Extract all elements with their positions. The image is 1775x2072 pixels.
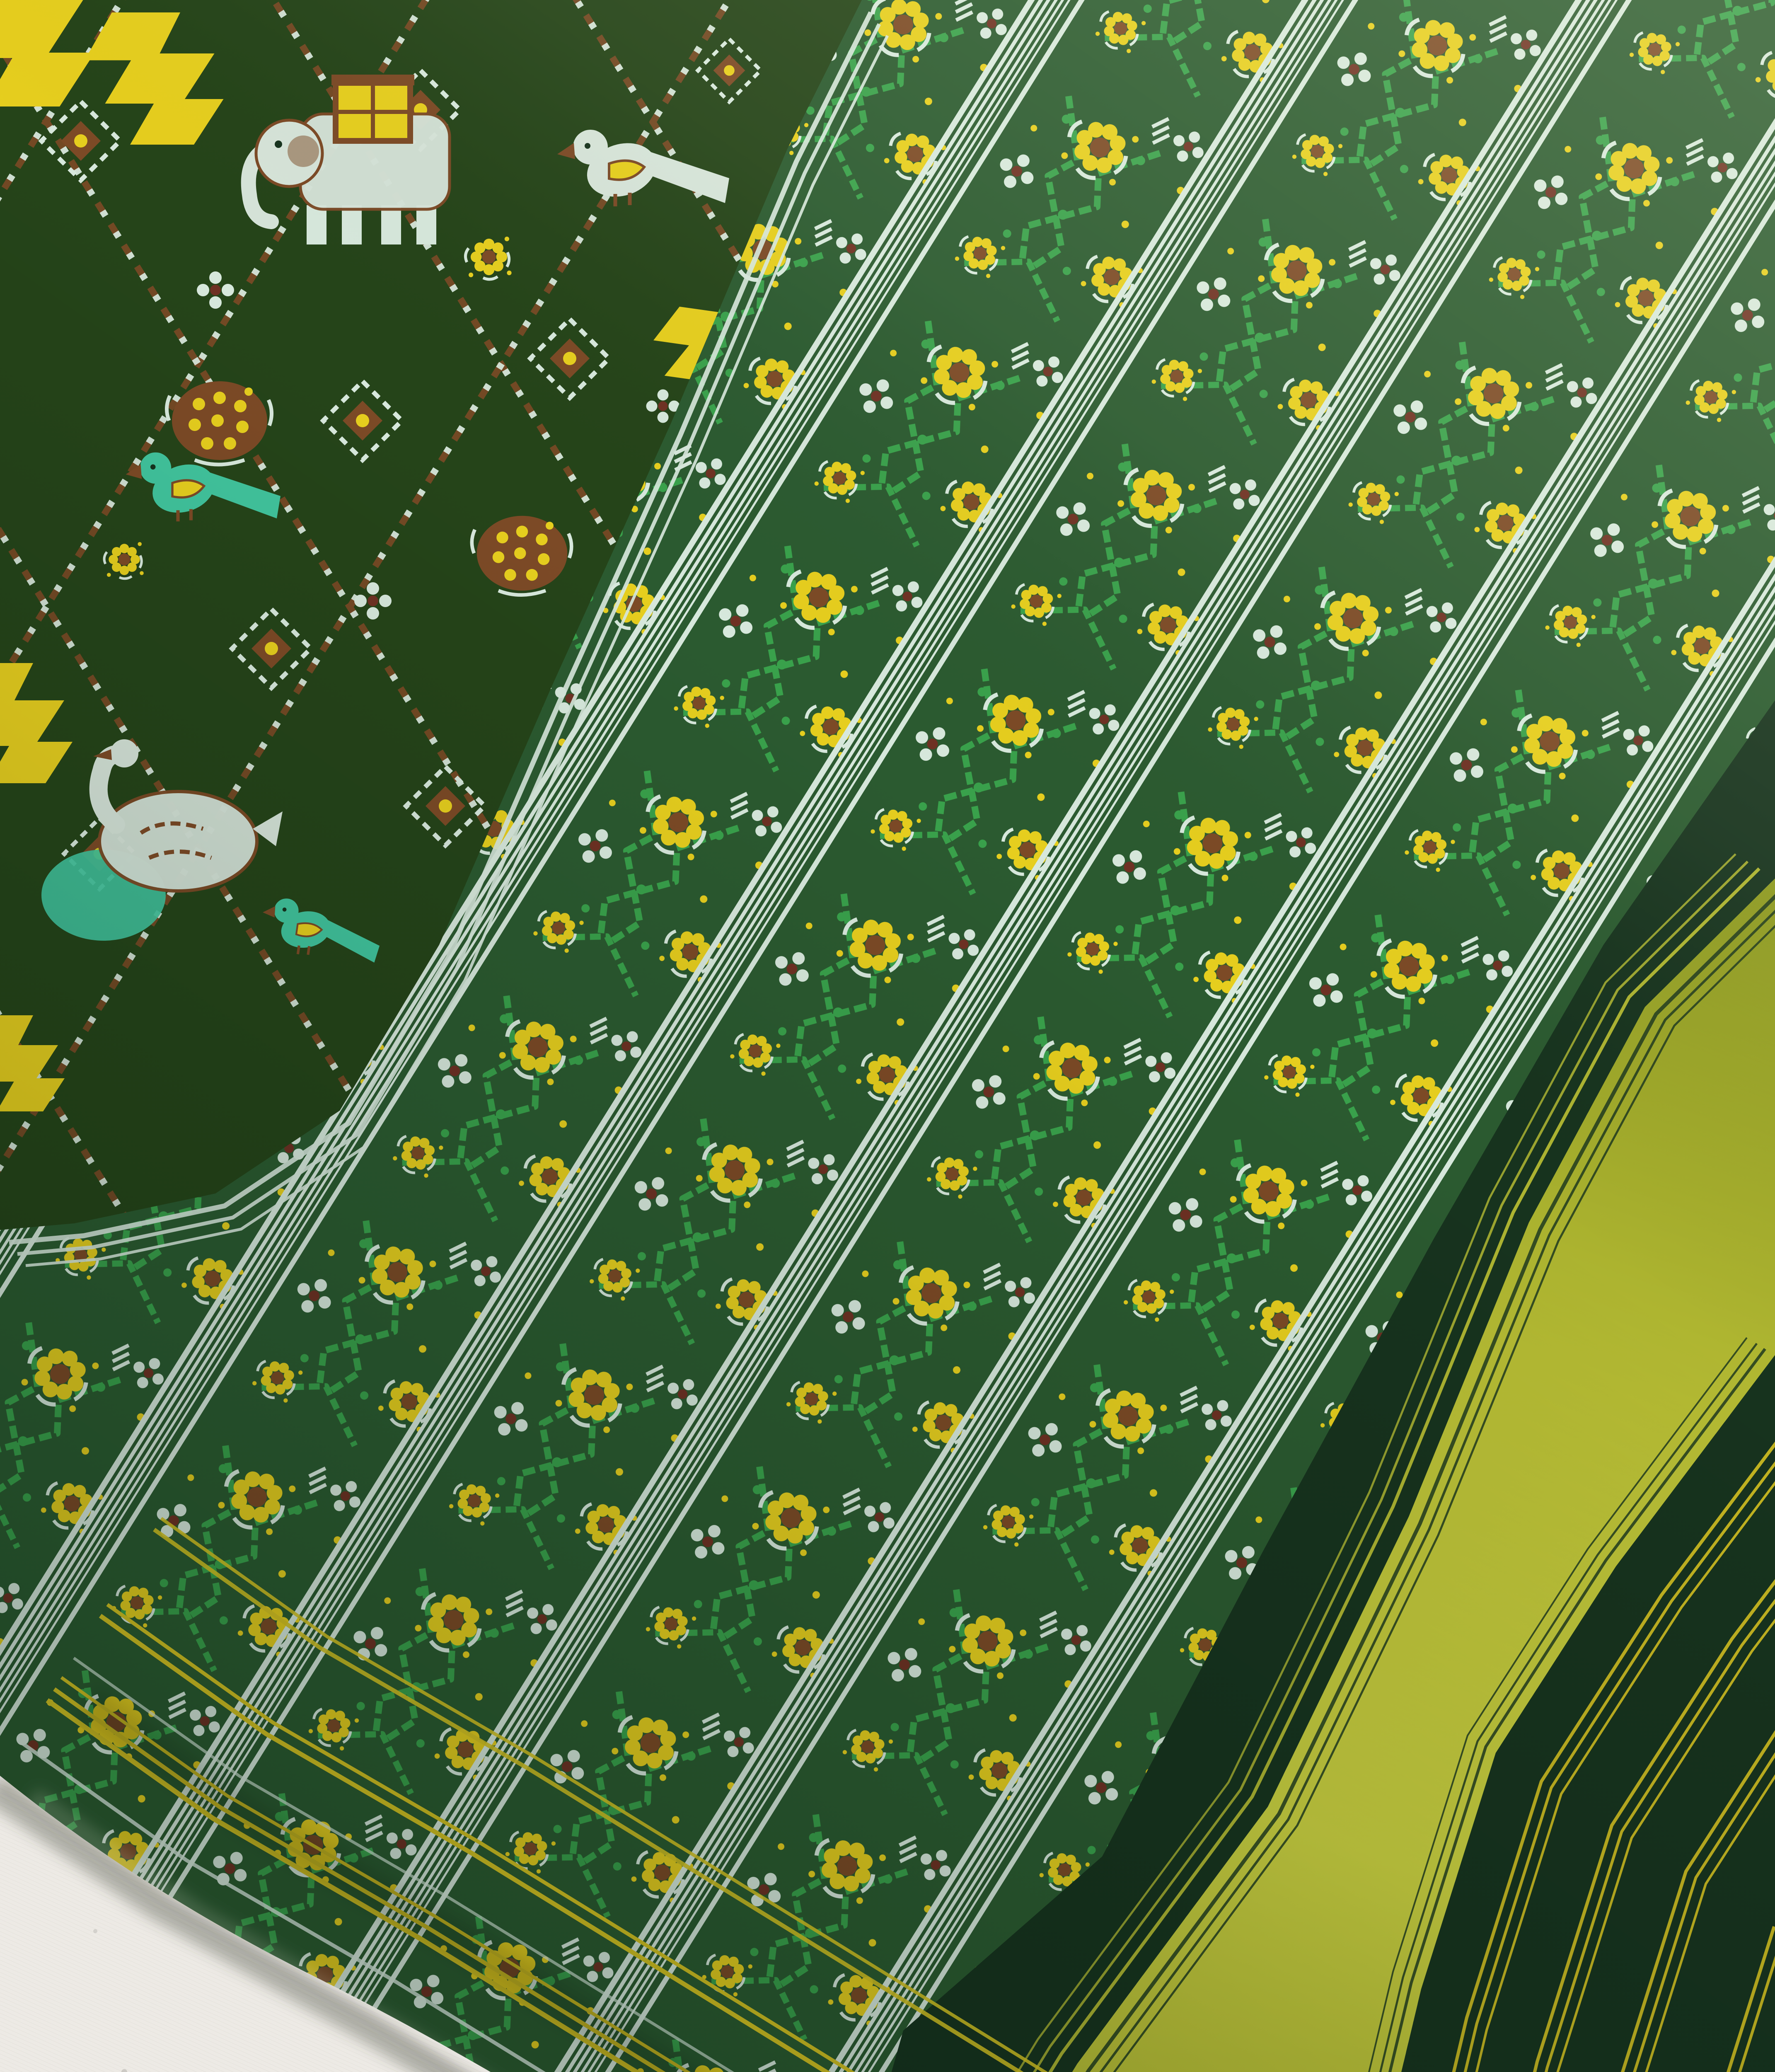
saree-photograph <box>0 0 1775 2072</box>
saree-fabric <box>0 0 1775 2072</box>
lighting-overlay <box>0 0 1775 2072</box>
